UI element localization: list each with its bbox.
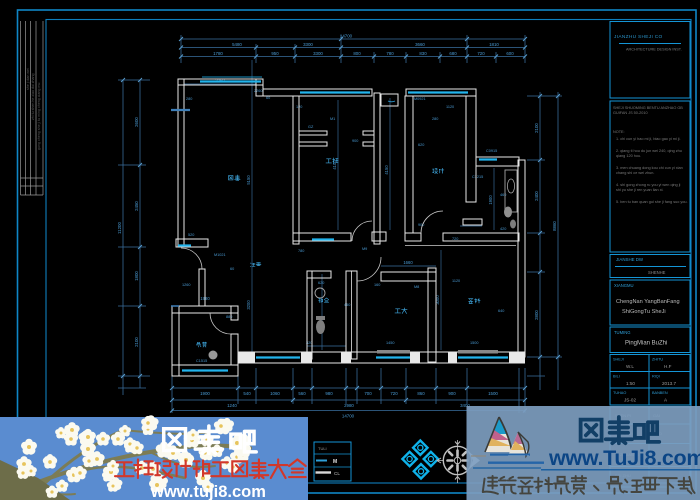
svg-text:M1021: M1021: [214, 253, 226, 257]
svg-text:1450: 1450: [386, 341, 394, 345]
svg-text:XIANGMU: XIANGMU: [614, 283, 634, 288]
svg-text:2. qiang ti hou du jun wei 240: 2. qiang ti hou du jun wei 240, qing zhu: [616, 149, 682, 153]
svg-text:www.tuji8.com: www.tuji8.com: [150, 483, 266, 500]
svg-text:3. men chuang dong kou chi cun: 3. men chuang dong kou chi cun yi xian: [616, 166, 683, 170]
svg-text:560: 560: [298, 391, 306, 396]
svg-text:M8: M8: [414, 285, 419, 289]
svg-text:C0915: C0915: [486, 149, 497, 153]
svg-text:2600: 2600: [134, 117, 139, 127]
svg-text:950: 950: [271, 51, 279, 56]
svg-text:TULI: TULI: [318, 446, 327, 451]
svg-text:280: 280: [432, 117, 438, 121]
svg-text:1780: 1780: [213, 51, 223, 56]
svg-text:4150: 4150: [384, 165, 389, 175]
svg-text:900: 900: [448, 391, 456, 396]
svg-text:1:50: 1:50: [626, 381, 635, 386]
svg-text:800: 800: [353, 51, 361, 56]
svg-text:1800: 1800: [134, 271, 139, 281]
svg-text:450: 450: [344, 303, 350, 307]
svg-text:11200: 11200: [117, 222, 122, 234]
svg-text:2100: 2100: [534, 123, 539, 133]
svg-text:chang shi ce wei zhun.: chang shi ce wei zhun.: [616, 171, 654, 175]
svg-text:5150: 5150: [246, 175, 251, 185]
svg-text:860: 860: [417, 391, 425, 396]
svg-text:620: 620: [418, 143, 424, 147]
svg-text:2400: 2400: [534, 191, 539, 201]
svg-text:540: 540: [243, 391, 251, 396]
svg-text:1060: 1060: [270, 391, 280, 396]
svg-text:2800: 2800: [534, 310, 539, 320]
svg-text:1500: 1500: [488, 391, 498, 396]
svg-text:1900: 1900: [488, 195, 493, 205]
svg-text:720: 720: [477, 51, 485, 56]
svg-text:420: 420: [500, 227, 506, 231]
svg-text:TUHAO: TUHAO: [613, 391, 626, 395]
svg-text:4. shi gong zhong ru you yi we: 4. shi gong zhong ru you yi wen qing ji: [616, 183, 681, 187]
svg-text:1120: 1120: [452, 279, 460, 283]
svg-text:14700: 14700: [340, 34, 353, 39]
svg-text:M0921: M0921: [414, 97, 426, 101]
svg-text:3200: 3200: [246, 300, 251, 310]
svg-text:620: 620: [318, 281, 324, 285]
svg-text:900: 900: [352, 139, 358, 143]
svg-text:5. ben tu ban quan gui she ji: 5. ben tu ban quan gui she ji fang suo y…: [616, 200, 688, 204]
svg-text:TUMING: TUMING: [614, 330, 631, 335]
svg-text:3660: 3660: [415, 42, 425, 47]
svg-text:NOTE:: NOTE:: [613, 130, 625, 134]
svg-text:1810: 1810: [489, 42, 499, 47]
svg-text:JIANSHE DW: JIANSHE DW: [616, 257, 644, 262]
svg-text:ChengNan YangBanFang: ChengNan YangBanFang: [616, 299, 680, 305]
svg-text:shi yu she ji ren yuan lian xi: shi yu she ji ren yuan lian xi.: [616, 188, 664, 192]
svg-text:M: M: [333, 459, 337, 465]
svg-text:780: 780: [386, 51, 394, 56]
svg-text:1260: 1260: [182, 283, 190, 287]
svg-text:2013.7: 2013.7: [662, 381, 676, 386]
svg-text:3300: 3300: [313, 51, 323, 56]
svg-text:gong cheng she ji tu ming chen: gong cheng she ji tu ming cheng xiang mu: [37, 83, 41, 150]
svg-text:SHENHE: SHENHE: [648, 270, 666, 275]
svg-text:JIANZHU SHEJI CO: JIANZHU SHEJI CO: [614, 34, 663, 40]
svg-text:2100: 2100: [134, 337, 139, 347]
svg-text:ShiGongTu SheJi: ShiGongTu SheJi: [622, 309, 666, 315]
svg-text:700: 700: [364, 391, 372, 396]
svg-text:3300: 3300: [303, 42, 313, 47]
svg-text:C1215: C1215: [472, 175, 483, 179]
svg-text:BANBEN: BANBEN: [652, 391, 668, 395]
svg-text:2980: 2980: [344, 403, 354, 408]
svg-text:W.L: W.L: [626, 364, 634, 369]
svg-text:720: 720: [390, 391, 398, 396]
svg-text:640: 640: [498, 309, 504, 313]
svg-text:520: 520: [188, 233, 194, 237]
svg-text:GUIFAN JS 50-2010: GUIFAN JS 50-2010: [613, 111, 648, 115]
svg-text:1900: 1900: [200, 391, 210, 396]
svg-text:160: 160: [374, 283, 380, 287]
svg-text:1660: 1660: [403, 260, 413, 265]
svg-text:1. chi cun yi hao mi ji, biao: 1. chi cun yi hao mi ji, biao gao yi mi …: [616, 137, 681, 141]
svg-text:H.F: H.F: [664, 364, 672, 369]
svg-text:ZHITU: ZHITU: [652, 358, 663, 362]
svg-text:zhi tu shen he xiao dui zhang: zhi tu shen he xiao dui zhang: [31, 73, 35, 120]
svg-text:M9: M9: [362, 247, 367, 251]
svg-text:SHEJI: SHEJI: [613, 358, 624, 362]
svg-text:680: 680: [449, 51, 457, 56]
svg-text:ARCHITECTURE DESIGN INST.: ARCHITECTURE DESIGN INST.: [626, 48, 682, 52]
svg-text:M1: M1: [330, 117, 335, 121]
svg-text:she ji dan wei: she ji dan wei: [26, 68, 30, 90]
svg-text:CL: CL: [334, 471, 340, 476]
svg-text:60: 60: [266, 96, 270, 100]
svg-text:2260: 2260: [254, 89, 262, 93]
svg-text:14700: 14700: [342, 414, 355, 419]
svg-text:1500: 1500: [470, 341, 478, 345]
svg-text:720: 720: [452, 237, 458, 241]
svg-text:8860: 8860: [552, 221, 557, 231]
svg-text:1120: 1120: [446, 105, 454, 109]
svg-text:5480: 5480: [232, 42, 242, 47]
svg-text:830: 830: [419, 51, 427, 56]
svg-text:600: 600: [506, 51, 514, 56]
svg-text:SHEJI SHUOMING BENTU ANZHAO GB: SHEJI SHUOMING BENTU ANZHAO GB: [613, 106, 683, 110]
svg-text:JS-02: JS-02: [624, 398, 636, 403]
svg-text:www.TuJi8.com: www.TuJi8.com: [548, 446, 700, 470]
svg-text:280: 280: [186, 97, 192, 101]
svg-text:C1515: C1515: [196, 359, 207, 363]
svg-text:RIQI: RIQI: [652, 375, 660, 379]
svg-text:1240: 1240: [227, 403, 237, 408]
svg-text:PingMian BuZhi: PingMian BuZhi: [625, 341, 667, 347]
svg-text:980: 980: [325, 391, 333, 396]
svg-text:2450: 2450: [134, 201, 139, 211]
svg-text:GZ: GZ: [308, 125, 314, 129]
svg-text:BILI: BILI: [613, 375, 620, 379]
svg-text:60: 60: [230, 267, 234, 271]
svg-text:qiang 120 hou.: qiang 120 hou.: [616, 154, 641, 158]
svg-text:780: 780: [298, 249, 304, 253]
